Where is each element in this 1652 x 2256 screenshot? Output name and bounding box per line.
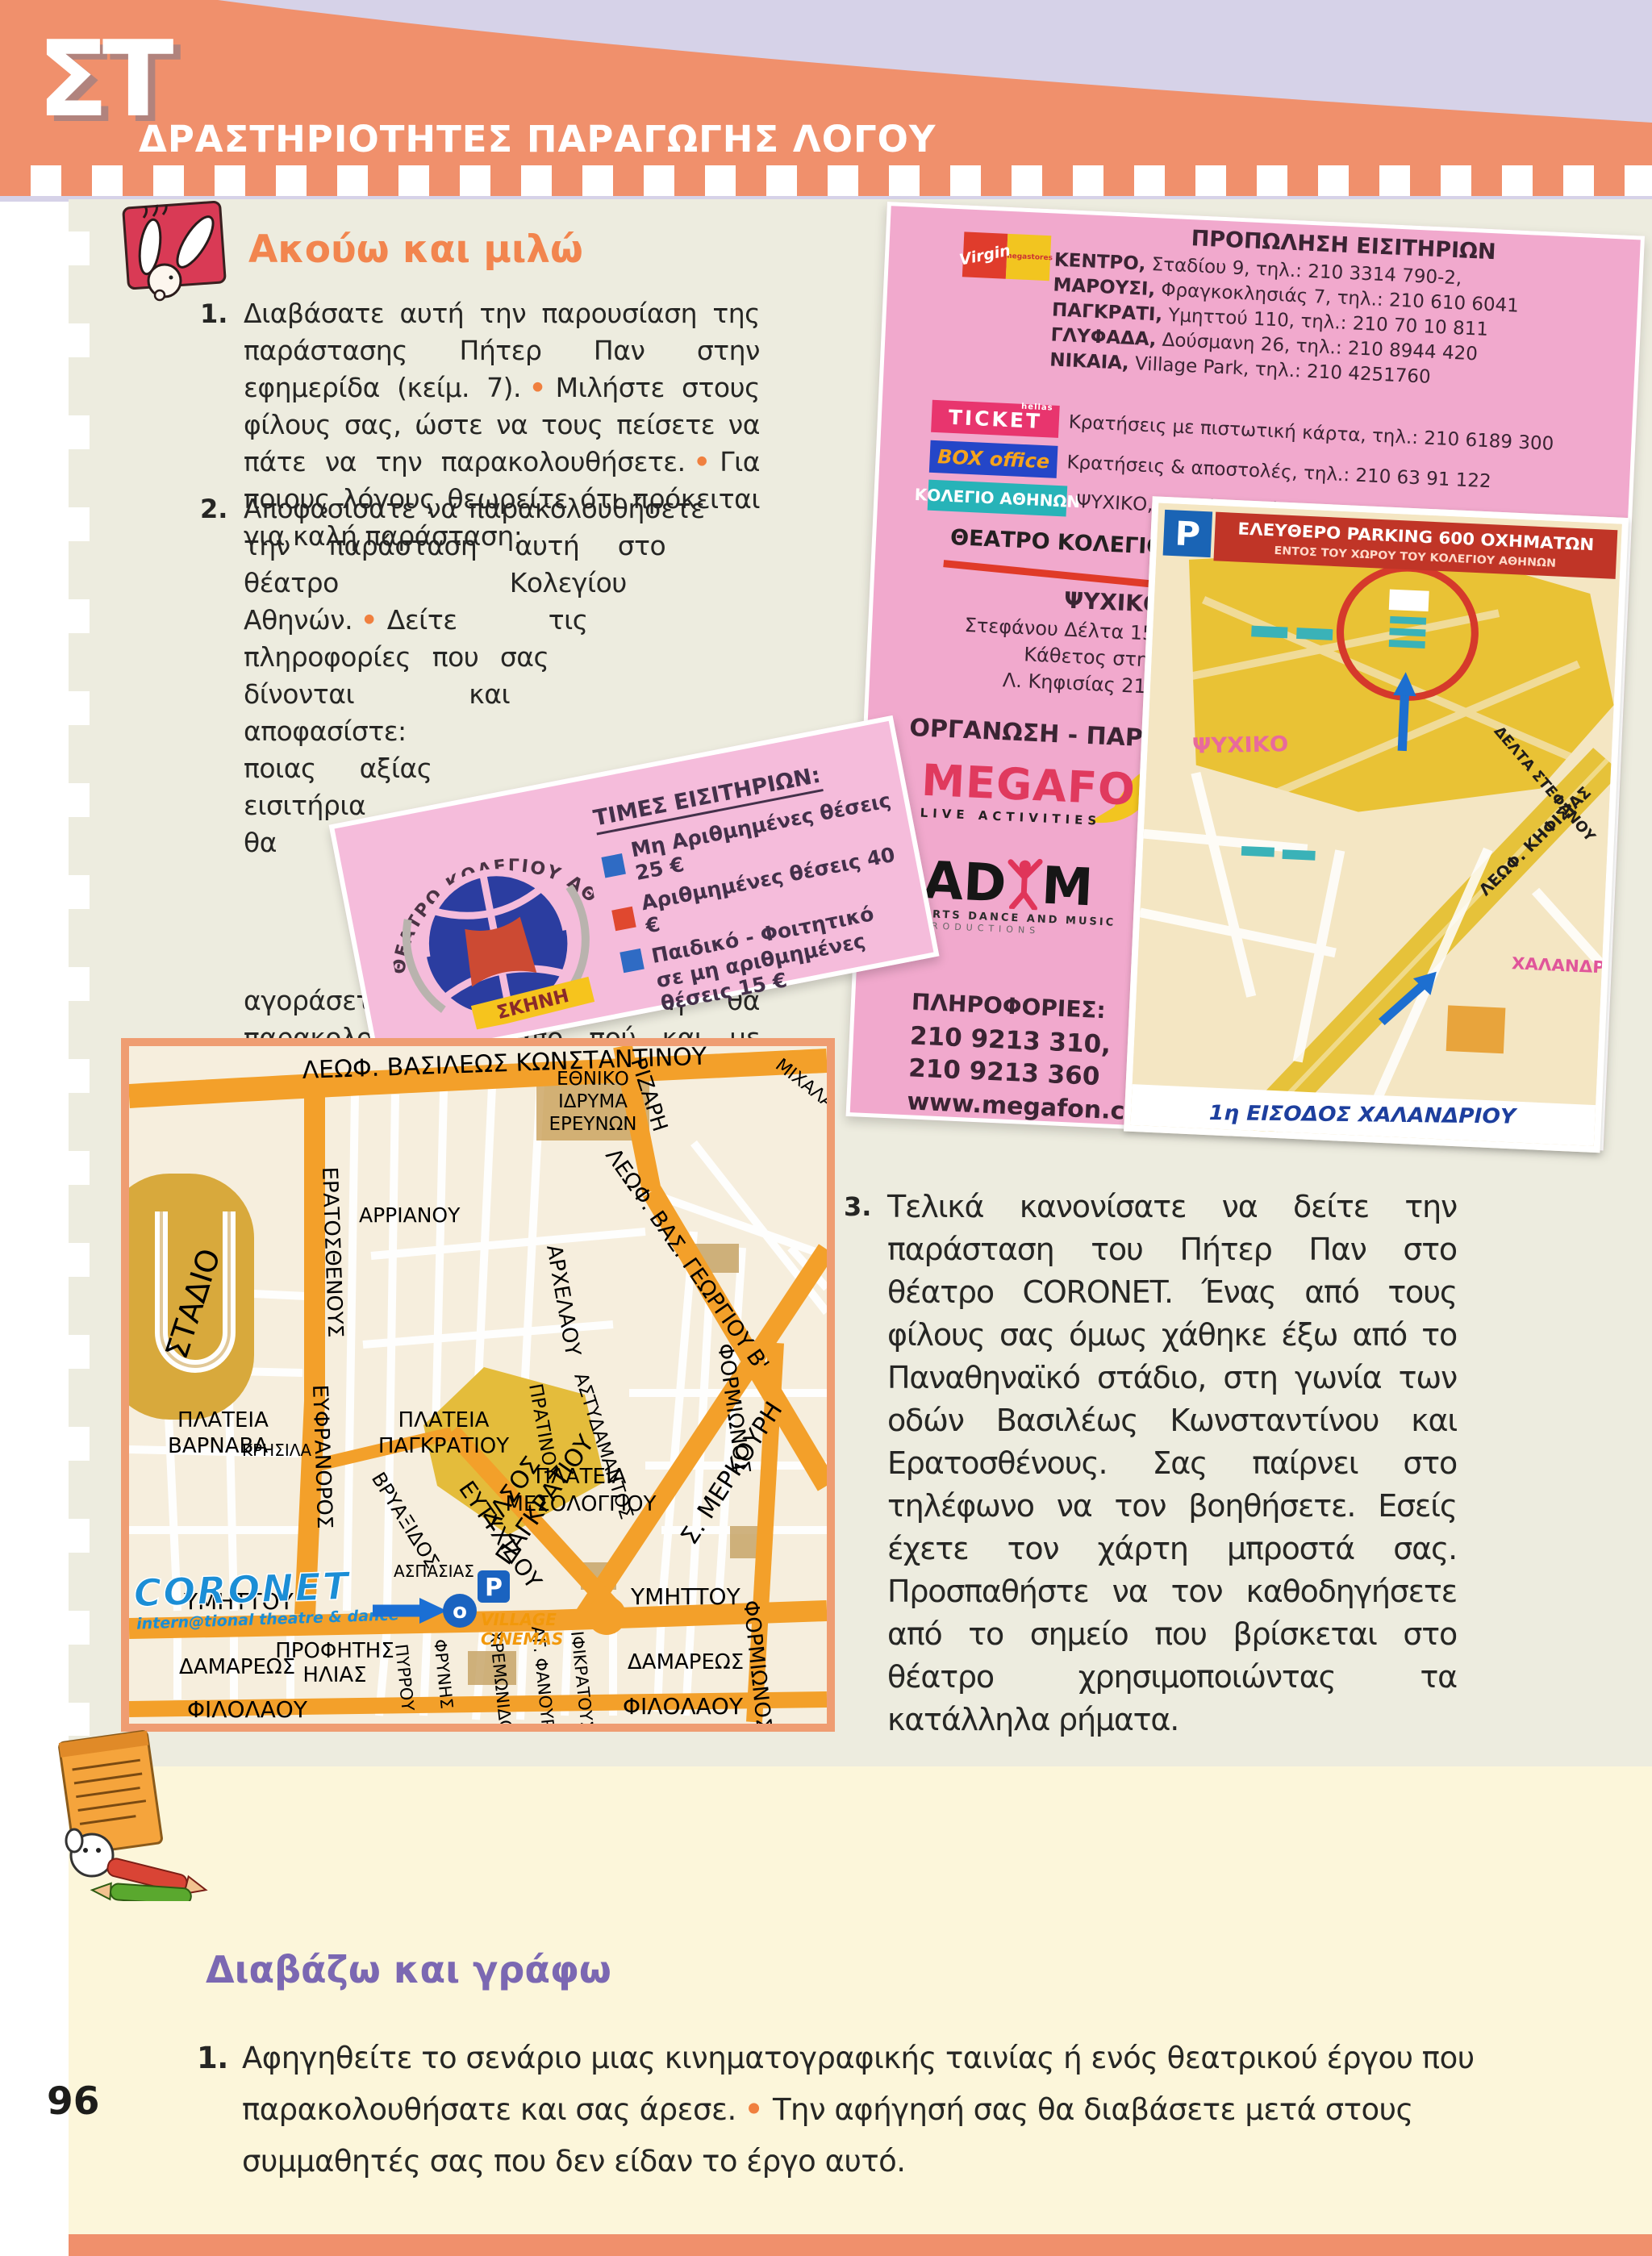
dancer-icon xyxy=(1005,857,1043,911)
map-label: ΠΛΑΤΕΙΑ xyxy=(177,1408,269,1432)
page-title: ΔΡΑΣΤΗΡΙΟΤΗΤΕΣ ΠΑΡΑΓΩΓΗΣ ΛΟΓΟΥ xyxy=(139,118,936,161)
item-number: 2. xyxy=(200,490,227,528)
banner-crenellation xyxy=(0,165,1652,196)
location-name: ΝΙΚΑΙΑ, xyxy=(1049,349,1130,373)
notepad-pencils-icon xyxy=(42,1728,219,1901)
virgin-logo-text: Virgin xyxy=(958,241,1012,269)
blue-square-icon xyxy=(601,853,625,878)
map-label: ΠΑΓΚΡΑΤΙΟΥ xyxy=(378,1434,509,1458)
map-label: ΙΔΡΥΜΑ xyxy=(558,1091,628,1112)
location-name: ΜΑΡΟΥΣΙ, xyxy=(1053,274,1156,300)
location-name: ΠΑΓΚΡΑΤΙ, xyxy=(1052,299,1163,325)
mini-map-label: ΨΥΧΙΚΟ xyxy=(1192,732,1289,759)
map-label: ΕΡΕΥΝΩΝ xyxy=(549,1114,637,1135)
location-name: ΓΛΥΦΑΔΑ, xyxy=(1050,324,1157,350)
textbook-page: ΣΤ ΔΡΑΣΤΗΡΙΟΤΗΤΕΣ ΠΑΡΑΓΩΓΗΣ ΛΟΓΟΥ Ακούω … xyxy=(0,0,1652,2256)
kolegio-athinon-logo: ΚΟΛΕΓΙΟ ΑΘΗΝΩΝ xyxy=(928,480,1068,517)
listening-mascot-icon xyxy=(111,200,240,305)
map-label: ΕΘΝΙΚΟ xyxy=(557,1069,629,1090)
orange-bullet-icon xyxy=(686,446,720,477)
map-label: ΑΣΠΑΣΙΑΣ xyxy=(394,1562,474,1581)
booking-text: Κρατήσεις με πιστωτική κάρτα, τηλ.: 210 … xyxy=(1068,411,1554,454)
adam-logo-text: AD xyxy=(922,857,1007,909)
pagrati-street-map: ΛΕΩΦ. ΒΑΣΙΛΕΩΣ ΚΩΝΣΤΑΝΤΙΝΟΥ ΕΘΝΙΚΟ ΙΔΡΥΜ… xyxy=(121,1038,835,1732)
task-item-3: 3. Τελικά κανονίσατε να δείτε την παράστ… xyxy=(887,1186,1457,1741)
flyer-mini-map: P ΕΛΕΥΘΕΡΟ PARKING 600 ΟΧΗΜΑΤΩΝ ΕΝΤΟΣ ΤΟ… xyxy=(1124,496,1629,1153)
village-cinemas-label: VILLAGE xyxy=(481,1610,557,1629)
theater-globe-logo: ΘΕΑΤΡΟ ΚΟΛΕΓΙΟΥ ΑΘΗΝΩΝ ΣΚΗΝΗ xyxy=(367,789,615,1043)
orange-bullet-icon xyxy=(353,604,387,636)
ticket-hellas-logo: TICKEThellas xyxy=(931,400,1060,438)
parking-icon: P xyxy=(485,1574,503,1602)
map-label: ΠΛΑΤΕΙΑ xyxy=(398,1408,490,1432)
location-name: ΚΕΝΤΡΟ, xyxy=(1053,249,1146,274)
presale-block: ΠΡΟΠΩΛΗΣΗ ΕΙΣΙΤΗΡΙΩΝ ΚΕΝΤΡΟ, Σταδίου 9, … xyxy=(1049,220,1633,399)
map-label: ΥΜΗΤΤΟΥ xyxy=(630,1583,741,1610)
item-text: Τελικά κανονίσατε να δείτε την παράσταση… xyxy=(887,1189,1457,1737)
item-number: 1. xyxy=(197,2033,228,2084)
map-label: ΦΙΛΟΛΑΟΥ xyxy=(623,1693,744,1720)
theater-flyer: Virgin megastores ΠΡΟΠΩΛΗΣΗ ΕΙΣΙΤΗΡΙΩΝ Κ… xyxy=(846,202,1646,1150)
map-label: ΑΡΡΙΑΝΟΥ xyxy=(359,1203,461,1227)
page-number: 96 xyxy=(47,2079,99,2124)
map-label: ΔΑΜΑΡΕΩΣ xyxy=(628,1650,744,1674)
mini-map-entrance-label: 1η ΕΙΣΟΔΟΣ ΧΑΛΑΝΔΡΙΟΥ xyxy=(1209,1102,1518,1129)
red-square-icon xyxy=(611,907,636,931)
adam-logo-text: M xyxy=(1041,862,1094,913)
village-cinemas-label: CINEMAS xyxy=(481,1629,563,1649)
item-number: 3. xyxy=(844,1186,871,1228)
megafon-logo: MEGAFON LIVE ACTIVITIES xyxy=(920,755,1174,832)
item-number: 1. xyxy=(200,295,227,332)
theater-address-block: ΨΥΧΙΚΟ Στεφάνου Δέλτα 15, Κάθετος στην Λ… xyxy=(942,582,1163,701)
bottom-orange-strip xyxy=(69,2234,1652,2256)
adam-productions-logo: AD M ARTS DANCE AND MUSIC PRODUCTIONS xyxy=(921,853,1119,940)
orange-bullet-icon xyxy=(736,2092,773,2127)
virgin-megastores-logo: Virgin megastores xyxy=(962,231,1051,281)
map-label: ΚΡΗΣΙΛΑ xyxy=(242,1441,311,1460)
hellas-logo-text: hellas xyxy=(1021,402,1053,413)
read-write-item-1: 1. Αφηγηθείτε το σενάριο μιας κινηματογρ… xyxy=(242,2033,1508,2187)
map-label: ΦΙΛΟΛΑΟΥ xyxy=(187,1696,308,1723)
section-heading-listen-speak: Ακούω και μιλώ xyxy=(248,227,583,272)
map-label: ΔΑΜΑΡΕΩΣ xyxy=(179,1655,295,1679)
parking-icon: P xyxy=(1174,514,1201,553)
blue-square-icon xyxy=(619,948,644,972)
map-label: ΕΥΦΡΑΝΟΡΟΣ xyxy=(307,1384,336,1529)
booking-text: Κρατήσεις & αποστολές, τηλ.: 210 63 91 1… xyxy=(1066,452,1491,492)
box-office-logo: BOX office xyxy=(929,440,1058,478)
map-label: ΗΛΙΑΣ xyxy=(302,1663,366,1687)
orange-bullet-icon xyxy=(521,372,556,403)
coronet-map-dot: o xyxy=(453,1599,467,1624)
section-heading-read-write: Διαβάζω και γράφω xyxy=(206,1948,611,1991)
